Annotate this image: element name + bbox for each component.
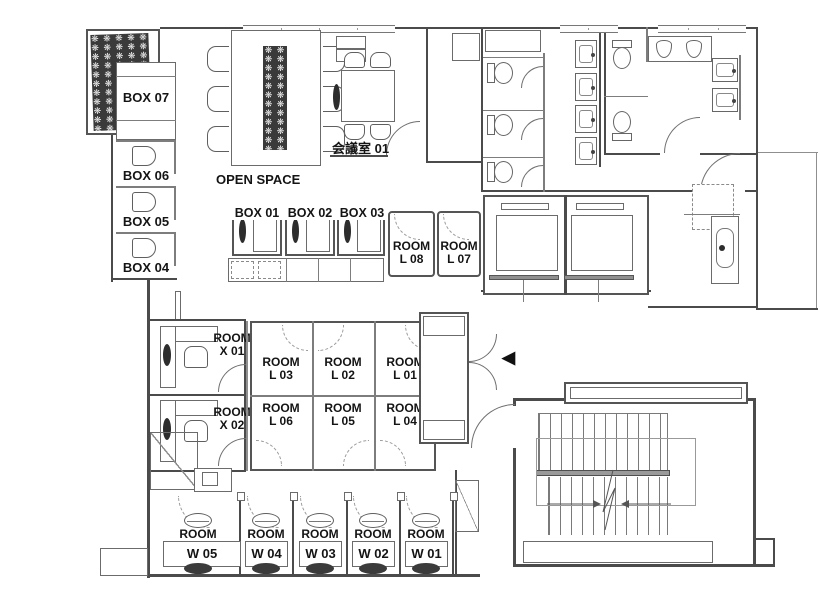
- wall: [116, 140, 176, 142]
- stair-door-arc: [471, 404, 515, 448]
- room-label-line: ROOM: [262, 355, 299, 369]
- elevator-indicator: [576, 203, 624, 210]
- wall: [246, 321, 248, 471]
- chair-icon: [132, 238, 156, 258]
- sink-icon: [575, 137, 597, 165]
- room-label-line: ROOM: [324, 401, 361, 415]
- wall: [150, 319, 246, 321]
- elevator-car: [496, 215, 558, 271]
- monitor-icon: [239, 219, 246, 243]
- elevator-car: [571, 215, 633, 271]
- wall: [426, 27, 428, 163]
- sink-icon: [575, 40, 597, 68]
- wall: [756, 308, 818, 310]
- wall-notch: [100, 548, 148, 576]
- elevator-sill: [564, 275, 634, 280]
- wall: [756, 27, 758, 310]
- stool-icon: [184, 563, 212, 574]
- partition-post: [344, 492, 352, 501]
- floor-plan: ❋ ❋ ❋ ❋ ❋ ❋ ❋ ❋ ❋ ❋ ❋ ❋ ❋ ❋ ❋ ❋ ❋ ❋ ❋ ❋ …: [0, 0, 820, 600]
- room-label-l02: ROOM L 02: [312, 356, 374, 382]
- room-label-line: L 02: [331, 368, 355, 382]
- room-label-box06: BOX 06: [114, 168, 178, 183]
- wall-nook: [452, 33, 480, 61]
- room-label-w05: ROOM: [168, 527, 228, 541]
- entry-door-arc: [469, 334, 497, 362]
- toilet-icon: [612, 112, 632, 141]
- wall: [481, 190, 701, 192]
- door-arc: [521, 118, 543, 140]
- sill-tick: [598, 280, 599, 302]
- faucet-icon: [719, 245, 725, 251]
- hatch-shaft: [455, 480, 479, 532]
- room-label-line: ROOM: [440, 239, 477, 253]
- chair-icon: [207, 46, 229, 72]
- partition-post: [397, 492, 405, 501]
- room-label-box03: BOX 03: [335, 206, 389, 220]
- entry-marker: ◀: [502, 348, 515, 368]
- restroom-counter: [485, 30, 541, 52]
- chair-icon: [412, 513, 440, 528]
- wall: [739, 55, 741, 120]
- toilet-icon: [612, 40, 632, 69]
- monitor-icon: [292, 219, 299, 243]
- stall-partition: [483, 110, 543, 111]
- locker: [423, 420, 465, 440]
- room-label-line: X 02: [220, 418, 245, 432]
- stall-partition: [604, 96, 648, 97]
- stool-icon: [359, 563, 387, 574]
- wall: [111, 278, 177, 280]
- room-label-l08: ROOM L 08: [388, 240, 435, 266]
- wall: [599, 27, 601, 167]
- stair-direction-arrows: [545, 468, 675, 538]
- room-label-line: L 03: [269, 368, 293, 382]
- desk-line: [116, 76, 176, 77]
- wall: [513, 448, 516, 567]
- sink-icon: [575, 105, 597, 133]
- wall: [116, 186, 176, 188]
- elevator-indicator: [501, 203, 549, 210]
- room-label-l06: ROOM L 06: [250, 402, 312, 428]
- shelf-line: [684, 214, 740, 215]
- chair-icon: [132, 192, 156, 212]
- locker-dashed: [231, 261, 254, 279]
- wall: [428, 161, 483, 163]
- chair-icon: [207, 126, 229, 152]
- door-arc: [664, 117, 700, 153]
- room-label-box04: BOX 04: [114, 260, 178, 275]
- toilet-icon: [487, 161, 513, 183]
- room-label-line: X 01: [220, 344, 245, 358]
- elevator-sill: [489, 275, 559, 280]
- room-label-line: L 06: [269, 414, 293, 428]
- monitor-icon: [163, 344, 171, 366]
- wall: [758, 152, 818, 153]
- chair-icon: [207, 86, 229, 112]
- wall: [564, 195, 567, 295]
- sink-icon: [712, 58, 738, 82]
- room-label-line: L 05: [331, 414, 355, 428]
- monitor-icon: [344, 219, 351, 243]
- wall: [250, 395, 436, 397]
- wall: [604, 153, 660, 155]
- chair-icon: [306, 513, 334, 528]
- entry-door-arc: [469, 362, 497, 390]
- toilet-icon: [487, 62, 513, 84]
- partition-post: [290, 492, 298, 501]
- chair-icon: [359, 513, 387, 528]
- room-label-box07: BOX 07: [114, 90, 178, 105]
- room-label-w02: ROOM: [343, 527, 403, 541]
- chair-icon: [344, 52, 365, 68]
- room-label-w03: ROOM: [290, 527, 350, 541]
- room-label-box05: BOX 05: [114, 214, 178, 229]
- desk-line: [116, 120, 176, 121]
- chair-icon: [184, 513, 212, 528]
- locker-divider: [286, 258, 287, 282]
- wall: [150, 394, 246, 396]
- wall: [745, 190, 757, 192]
- partition-post: [450, 492, 458, 501]
- wall: [816, 152, 817, 310]
- room-label-line: ROOM: [324, 355, 361, 369]
- locker-divider: [350, 258, 351, 282]
- door-arc: [521, 66, 543, 88]
- room-label-l05: ROOM L 05: [312, 402, 374, 428]
- locker-dashed: [258, 261, 281, 279]
- room-label-line: ROOM: [262, 401, 299, 415]
- table-planter: ❋ ❋ ❋ ❋ ❋ ❋ ❋ ❋ ❋ ❋ ❋ ❋ ❋ ❋ ❋ ❋ ❋ ❋ ❋ ❋ …: [263, 46, 287, 150]
- room-label-l07: ROOM L 07: [437, 240, 481, 266]
- door-arc: [521, 165, 543, 187]
- wall: [755, 538, 775, 540]
- room-label-box01: BOX 01: [230, 206, 284, 220]
- stair-lower-landing: [523, 541, 713, 563]
- stool-icon: [252, 563, 280, 574]
- locker-divider: [318, 258, 319, 282]
- wall: [147, 278, 150, 578]
- wall: [111, 134, 113, 282]
- room-label-line: L 07: [447, 252, 471, 266]
- lectern-icon: [333, 84, 340, 110]
- door-arc: [218, 438, 246, 466]
- stair-upper-shaft-inner: [570, 387, 742, 399]
- utility-closet: [150, 432, 198, 490]
- locker: [423, 316, 465, 336]
- meeting-shelf: [336, 36, 366, 49]
- toilet-icon: [487, 114, 513, 136]
- wall: [753, 398, 756, 567]
- open-space-label: OPEN SPACE: [216, 172, 300, 187]
- room-label-w01: ROOM: [396, 527, 456, 541]
- window-strip: [560, 25, 618, 33]
- chair-icon: [370, 52, 391, 68]
- room-label-line: L 08: [400, 252, 424, 266]
- room-label-line: L 04: [393, 414, 417, 428]
- stall-partition: [483, 157, 543, 158]
- chair-icon: [252, 513, 280, 528]
- wall: [116, 232, 176, 234]
- meeting-table: [341, 70, 395, 122]
- room-label-l03: ROOM L 03: [250, 356, 312, 382]
- chair-icon: [132, 146, 156, 166]
- door-arc: [218, 364, 246, 392]
- sink-icon: [712, 88, 738, 112]
- wall: [543, 53, 545, 192]
- wall: [648, 306, 758, 308]
- room-label-box02: BOX 02: [283, 206, 337, 220]
- room-label-line: L 01: [393, 368, 417, 382]
- partition-post: [237, 492, 245, 501]
- room-label-line: ROOM: [393, 239, 430, 253]
- meeting-room-label: 会議室 01: [332, 138, 389, 157]
- sill-tick: [523, 280, 524, 302]
- wall: [513, 564, 775, 567]
- window-strip: [658, 25, 746, 33]
- stool-icon: [412, 563, 440, 574]
- room-label-w04: ROOM: [236, 527, 296, 541]
- door-arc: [386, 121, 420, 155]
- wall: [147, 574, 480, 577]
- utility-box: [202, 472, 218, 486]
- wall: [604, 27, 606, 155]
- stall-partition: [483, 57, 543, 58]
- wall-panel: [175, 291, 181, 321]
- stool-icon: [306, 563, 334, 574]
- wall: [773, 538, 775, 567]
- sink-icon: [575, 73, 597, 101]
